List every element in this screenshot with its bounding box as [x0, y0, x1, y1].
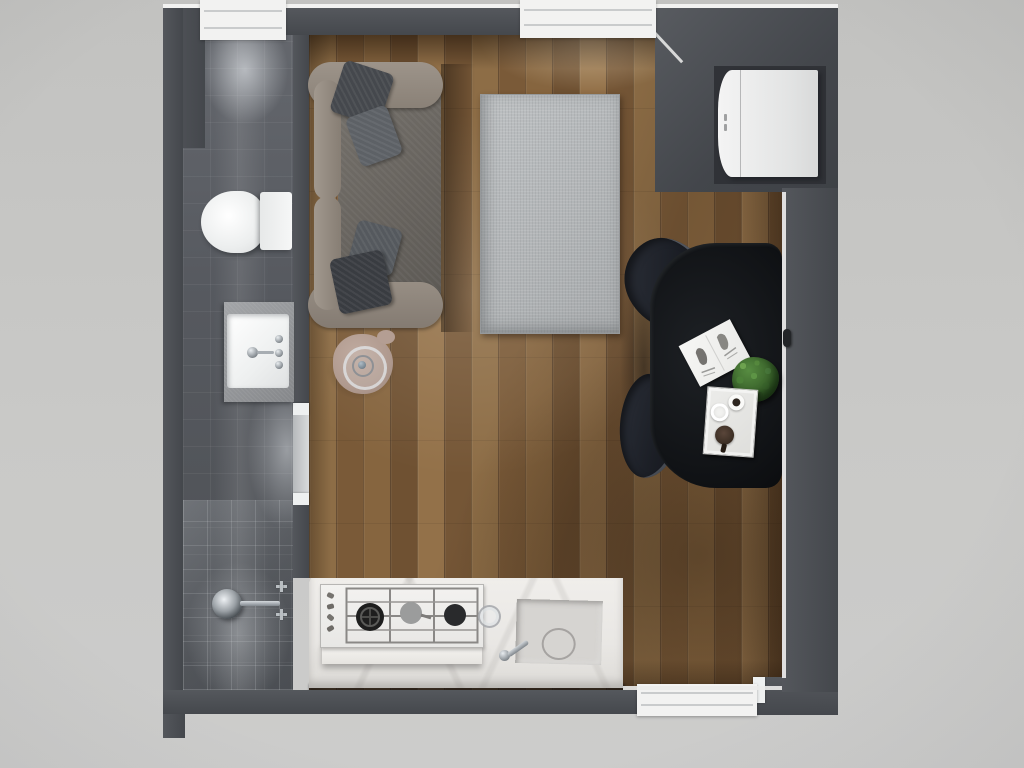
glass-tray-center	[358, 361, 366, 369]
fridge-door-seam	[740, 70, 741, 177]
window-pane-line	[204, 10, 282, 12]
wall-door-handle	[783, 329, 791, 347]
doorway-jamb-top	[293, 403, 309, 415]
shower-handle	[276, 581, 287, 592]
shower-arm	[240, 601, 280, 606]
sofa-floor-shadow	[441, 64, 475, 332]
vanity-handle	[275, 361, 283, 369]
stove-knob	[326, 625, 335, 633]
wall-interior-upper	[293, 35, 309, 403]
floor-wall-seam-highlight	[623, 686, 782, 690]
wall-left-foot	[163, 712, 185, 738]
gas-stove	[320, 584, 484, 648]
stove-knob	[326, 613, 335, 621]
stove-knob	[326, 592, 334, 599]
fridge-handle	[724, 124, 727, 131]
bathroom-doorway	[293, 415, 309, 493]
stove-grate	[345, 587, 479, 644]
stove-knob	[326, 603, 334, 610]
wall-interior-lower	[293, 505, 309, 578]
side-table	[333, 334, 393, 394]
sofa-pillow	[329, 249, 393, 315]
shower-head	[212, 589, 242, 619]
drinking-glass	[478, 605, 501, 628]
window-pane-line	[204, 27, 282, 29]
side-table-lobe	[377, 330, 395, 344]
floorplan-scene	[0, 0, 1024, 768]
muffin	[714, 425, 734, 445]
window-top-left	[200, 0, 286, 40]
refrigerator	[718, 70, 818, 177]
kitchen-sink	[515, 599, 603, 665]
vanity-faucet-spout	[257, 351, 274, 354]
window-top-middle	[520, 0, 656, 38]
wall-right-inner-highlight	[782, 192, 786, 678]
toilet-bowl	[201, 191, 267, 253]
wall-left	[163, 8, 183, 714]
window-pane-line	[524, 9, 652, 11]
fridge-handle	[724, 114, 727, 121]
small-bowl	[710, 403, 729, 422]
vanity-handle	[275, 335, 283, 343]
window-pane-line	[524, 24, 652, 26]
toilet-tank	[260, 192, 292, 250]
espresso-coffee	[732, 398, 741, 407]
area-rug	[480, 94, 620, 334]
window-pane-line	[641, 692, 753, 694]
sink-basin-ring	[541, 628, 576, 661]
serving-tray	[703, 386, 759, 457]
shower-handle	[276, 609, 287, 620]
sofa	[308, 62, 443, 328]
muffin-stem	[720, 443, 727, 453]
window-pane-line	[641, 704, 753, 706]
wall-right	[782, 188, 838, 692]
espresso-cup	[728, 394, 745, 411]
doorway-jamb-bottom	[293, 493, 309, 505]
vanity-handle	[275, 349, 283, 357]
